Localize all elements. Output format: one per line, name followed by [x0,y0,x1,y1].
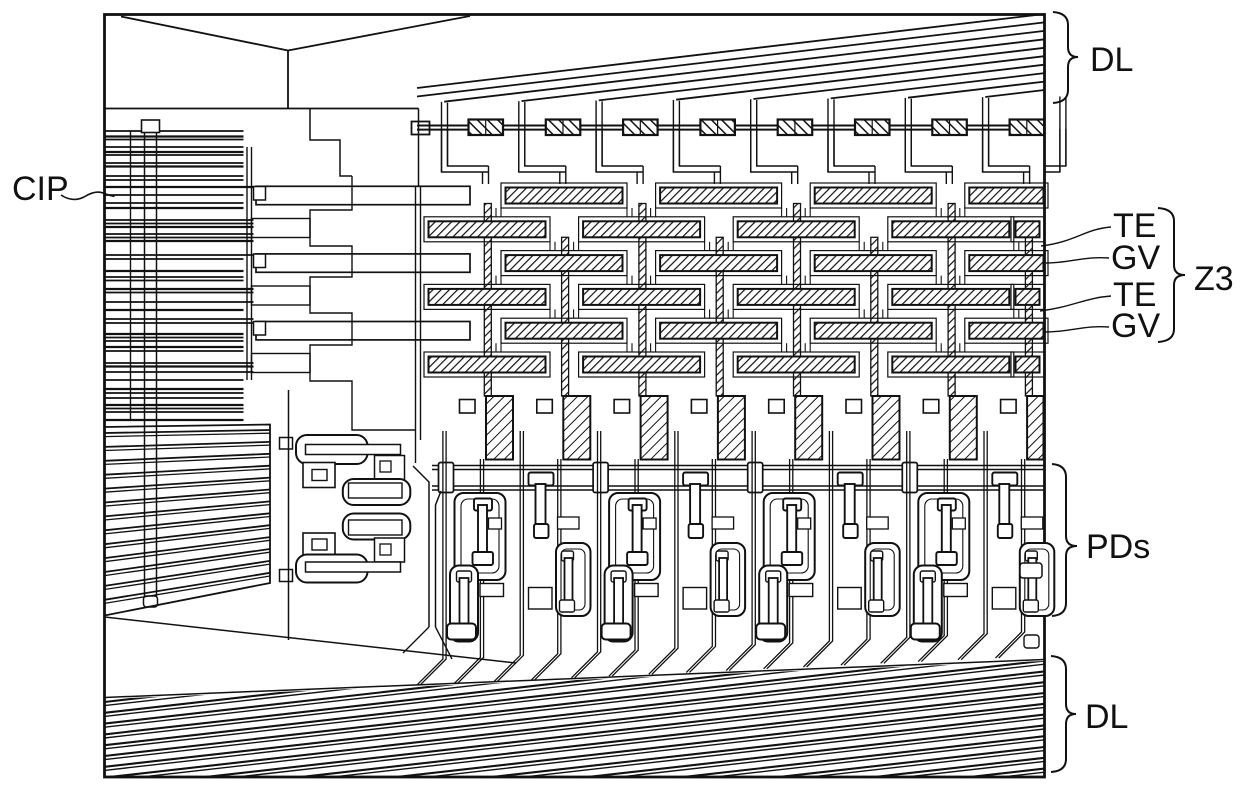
svg-text:DL: DL [1085,698,1128,736]
svg-text:DL: DL [1090,41,1133,79]
svg-text:PDs: PDs [1086,528,1150,566]
svg-text:GV: GV [1111,307,1160,345]
svg-text:GV: GV [1111,239,1160,277]
svg-text:Z3: Z3 [1194,260,1234,298]
svg-text:CIP: CIP [12,170,69,208]
